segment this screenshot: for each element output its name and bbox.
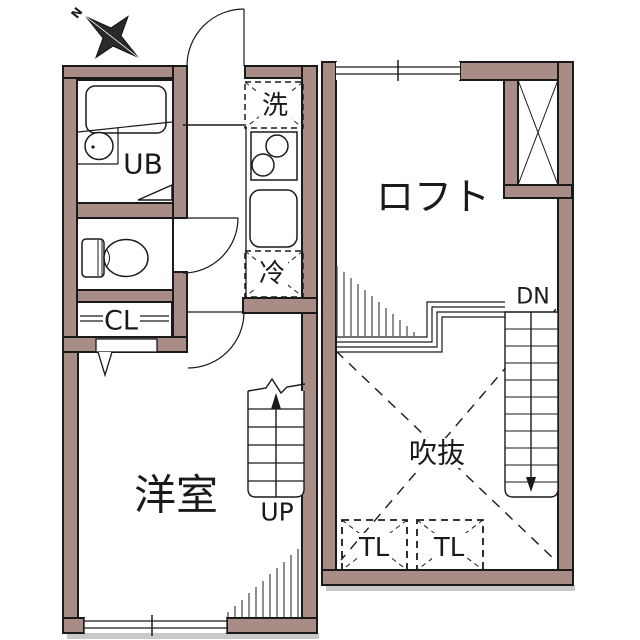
pipe-shaft [518, 80, 558, 185]
wall-ub-toilet-divider [77, 203, 173, 218]
wall-right [558, 62, 573, 585]
wall-top [460, 62, 573, 80]
stairs-down: DN [505, 285, 558, 498]
stairs-up-label: UP [260, 498, 293, 527]
window-opening [84, 618, 227, 633]
floor-plan-canvas: UB CL [0, 0, 640, 640]
unit-bath-label: UB [123, 148, 163, 181]
window-bottom [84, 615, 227, 636]
wall-bottom-corner [63, 618, 84, 633]
wall-top-left-segment [63, 66, 183, 78]
bathtub [86, 86, 166, 133]
washbasin-drain [91, 145, 94, 148]
wall-left [322, 62, 336, 585]
washing-machine-label: 洗 [262, 91, 288, 121]
void-label: 吹抜 [409, 437, 465, 470]
toilet-room [77, 218, 173, 290]
western-room-label: 洋室 [134, 471, 218, 520]
window-loft-top [336, 60, 460, 81]
closet-label: CL [104, 306, 138, 337]
wall-kitchen-room-divider [243, 298, 317, 313]
wall-bottom [322, 570, 573, 585]
wall-right [302, 66, 317, 633]
stove-burner [252, 154, 274, 176]
wall-hall-upper [173, 66, 187, 218]
toilet-tank [82, 239, 104, 277]
toilet-bowl [104, 240, 148, 277]
washbasin [85, 133, 113, 160]
wall-bottom-right-segment [227, 618, 317, 633]
shaft-wall-bottom [504, 185, 572, 198]
stove-burner [266, 135, 288, 157]
refrigerator-label: 冷 [259, 259, 285, 289]
toplight-label: TL [433, 533, 465, 563]
unit-bath-room: UB [77, 80, 173, 203]
wall-toilet-closet-divider [77, 290, 173, 302]
loft-label: ロフト [376, 175, 490, 219]
closet-opening [96, 339, 157, 352]
toplight-label: TL [358, 533, 390, 563]
kitchen-sink [250, 190, 297, 247]
floor-plan-page: UB CL [0, 0, 640, 640]
stairs-down-label: DN [516, 285, 549, 310]
shaft-wall-left [504, 80, 518, 198]
